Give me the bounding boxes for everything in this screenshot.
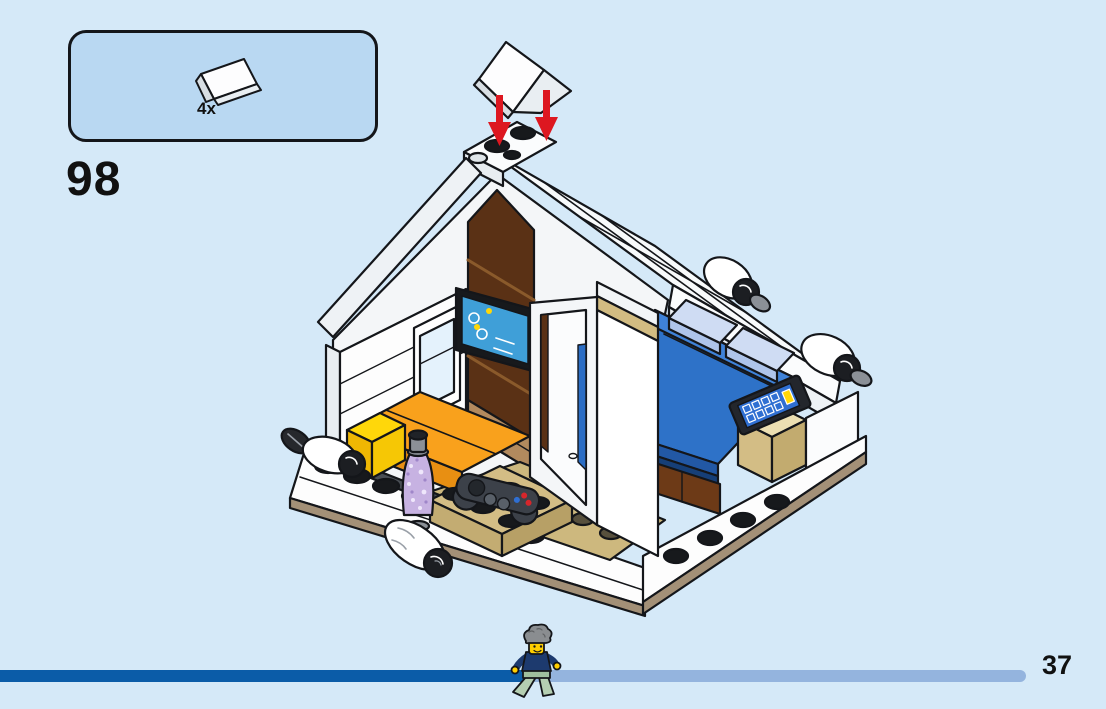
new-part-roof-ridge-piece — [474, 42, 571, 118]
assembly-illustration — [0, 0, 1106, 709]
minifig-hand — [512, 667, 519, 674]
walking-minifigure — [512, 625, 561, 698]
minifig-hair — [524, 625, 552, 644]
